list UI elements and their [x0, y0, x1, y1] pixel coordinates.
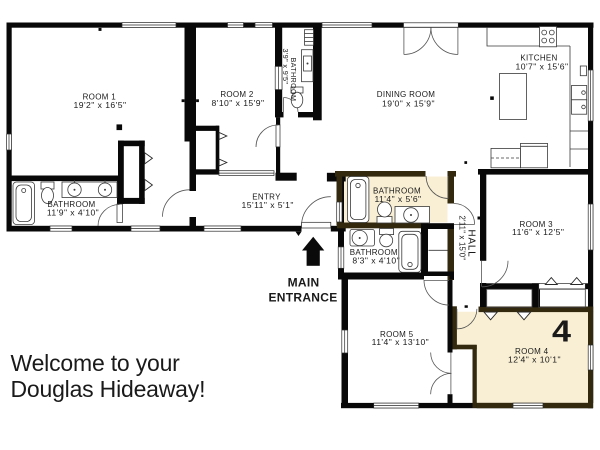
svg-text:Welcome to your: Welcome to your — [11, 350, 181, 376]
svg-text:8'3" x 4'10": 8'3" x 4'10" — [352, 255, 400, 265]
svg-text:4: 4 — [552, 314, 572, 349]
svg-text:2'11" x 15'0": 2'11" x 15'0" — [458, 216, 467, 261]
svg-text:19'2" x 16'5": 19'2" x 16'5" — [74, 100, 127, 110]
svg-text:15'11" x 5'1": 15'11" x 5'1" — [242, 200, 294, 210]
svg-text:3'9" x 9'5": 3'9" x 9'5" — [281, 49, 290, 85]
svg-text:11'6" x 12'5": 11'6" x 12'5" — [512, 227, 564, 237]
svg-text:11'9" x 4'10": 11'9" x 4'10" — [47, 207, 99, 217]
svg-text:MAIN: MAIN — [288, 276, 320, 290]
svg-text:19'0" x 15'9": 19'0" x 15'9" — [382, 99, 435, 109]
svg-text:10'7" x 15'6": 10'7" x 15'6" — [516, 62, 569, 72]
svg-text:11'4" x 13'10": 11'4" x 13'10" — [372, 337, 430, 347]
svg-text:8'10" x 15'9": 8'10" x 15'9" — [212, 98, 265, 108]
svg-text:12'4" x 10'1": 12'4" x 10'1" — [508, 355, 561, 365]
svg-text:11'4" x 5'6": 11'4" x 5'6" — [374, 194, 421, 204]
svg-text:Douglas Hideaway!: Douglas Hideaway! — [11, 376, 206, 402]
svg-text:ENTRANCE: ENTRANCE — [268, 291, 337, 305]
